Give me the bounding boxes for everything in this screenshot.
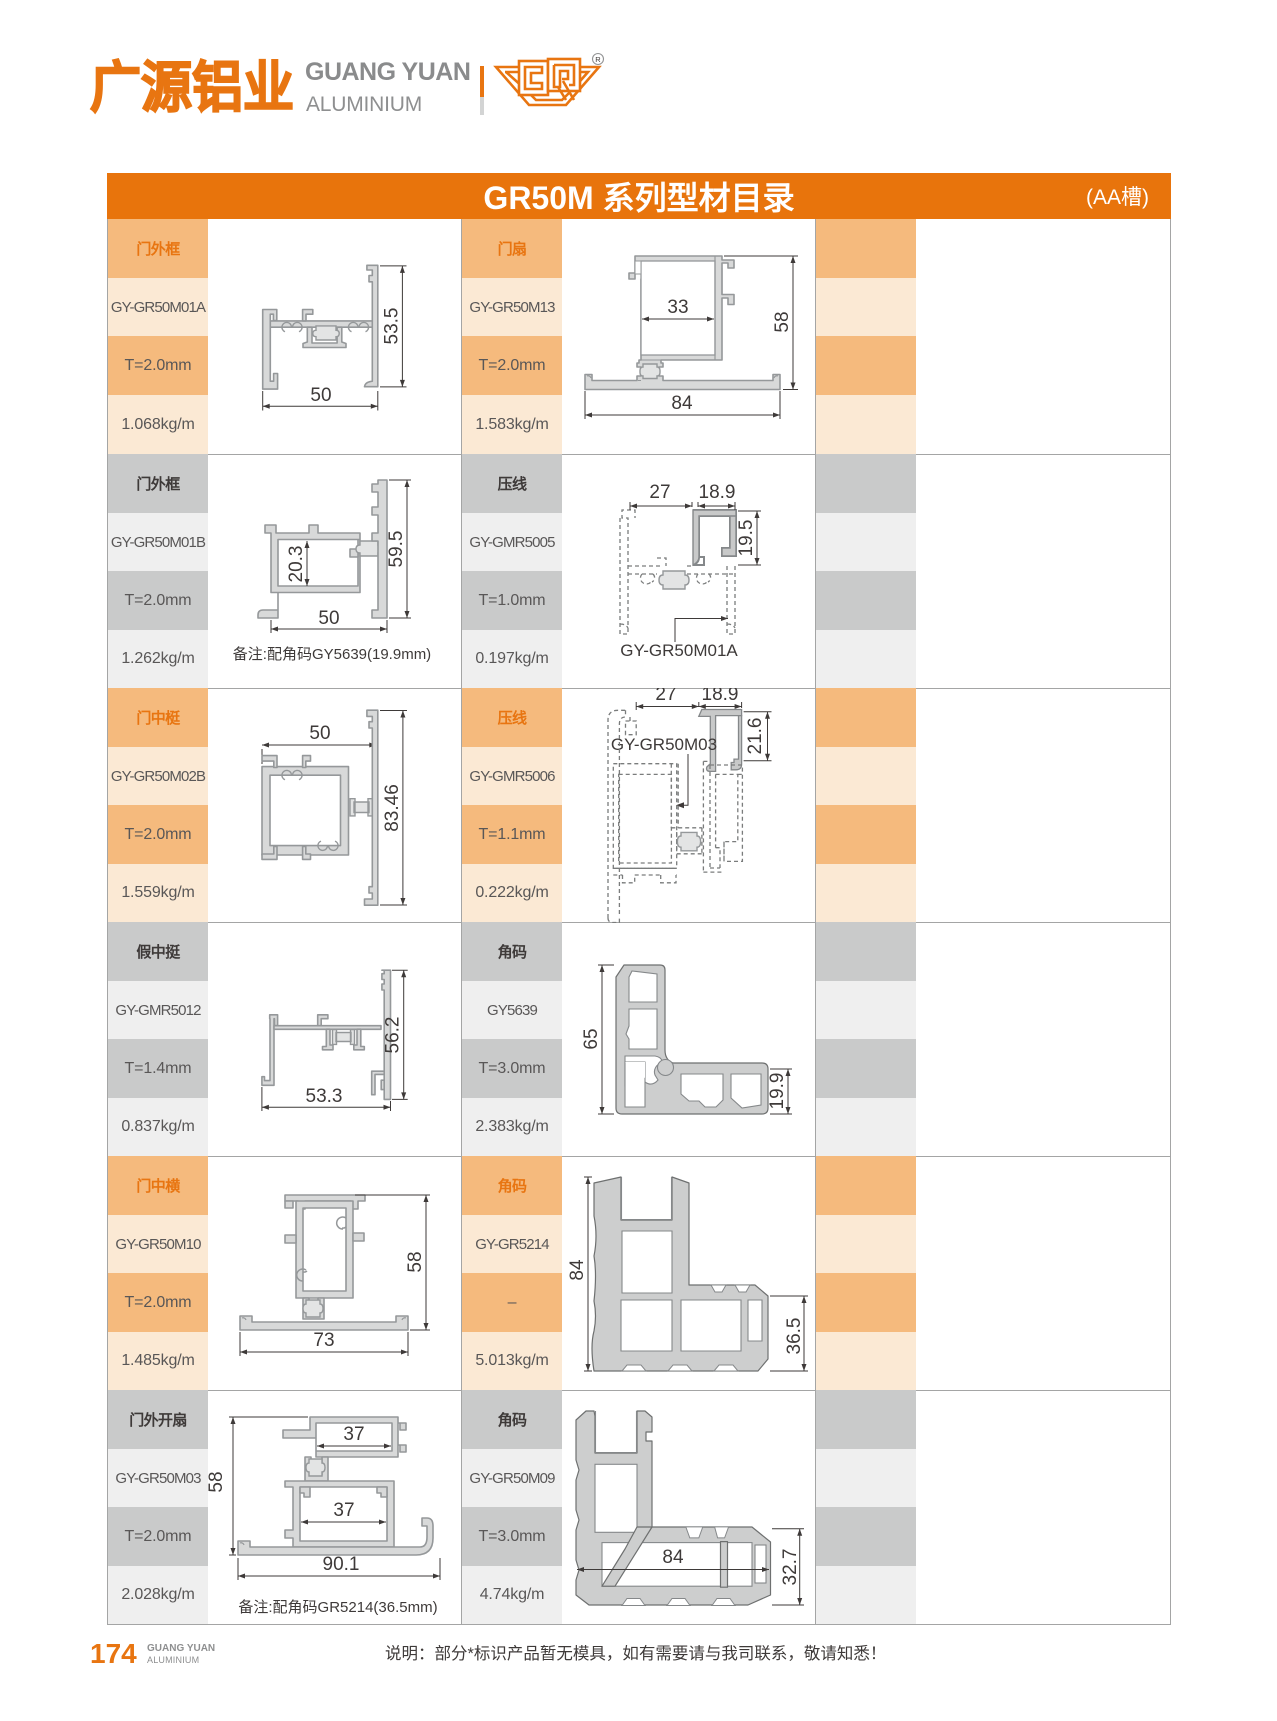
svg-text:R: R: [595, 55, 601, 64]
svg-text:50: 50: [310, 385, 331, 406]
svg-text:53.3: 53.3: [306, 1086, 343, 1107]
svg-text:65: 65: [581, 1028, 602, 1049]
svg-text:21.6: 21.6: [745, 718, 766, 755]
svg-text:84: 84: [671, 393, 693, 414]
svg-text:37: 37: [333, 1500, 354, 1521]
svg-text:GY-GR50M01A: GY-GR50M01A: [620, 641, 738, 660]
svg-text:58: 58: [405, 1251, 426, 1272]
svg-text:27: 27: [655, 688, 676, 705]
svg-text:18.9: 18.9: [702, 688, 739, 705]
svg-text:53.5: 53.5: [382, 308, 403, 345]
svg-text:备注:配角码GR5214(36.5mm): 备注:配角码GR5214(36.5mm): [238, 1599, 437, 1616]
svg-text:33: 33: [667, 297, 688, 318]
svg-text:84: 84: [662, 1547, 684, 1568]
svg-text:备注:配角码GY5639(19.9mm): 备注:配角码GY5639(19.9mm): [233, 646, 431, 663]
svg-text:50: 50: [318, 608, 339, 629]
svg-text:20.3: 20.3: [286, 546, 307, 583]
svg-text:58: 58: [772, 311, 793, 332]
svg-text:59.5: 59.5: [386, 531, 407, 568]
svg-text:50: 50: [309, 723, 330, 744]
svg-text:32.7: 32.7: [780, 1549, 801, 1586]
svg-text:19.5: 19.5: [736, 520, 757, 557]
svg-text:56.2: 56.2: [383, 1017, 404, 1054]
svg-text:18.9: 18.9: [699, 482, 736, 503]
svg-text:83.46: 83.46: [382, 784, 403, 832]
svg-text:GY-GR50M03: GY-GR50M03: [611, 735, 717, 754]
svg-text:36.5: 36.5: [784, 1318, 805, 1355]
svg-text:19.9: 19.9: [767, 1073, 788, 1110]
svg-text:37: 37: [343, 1424, 364, 1445]
svg-text:27: 27: [649, 482, 670, 503]
svg-text:58: 58: [208, 1471, 227, 1492]
svg-text:90.1: 90.1: [323, 1554, 360, 1575]
svg-text:84: 84: [567, 1259, 588, 1281]
svg-text:73: 73: [313, 1330, 334, 1351]
